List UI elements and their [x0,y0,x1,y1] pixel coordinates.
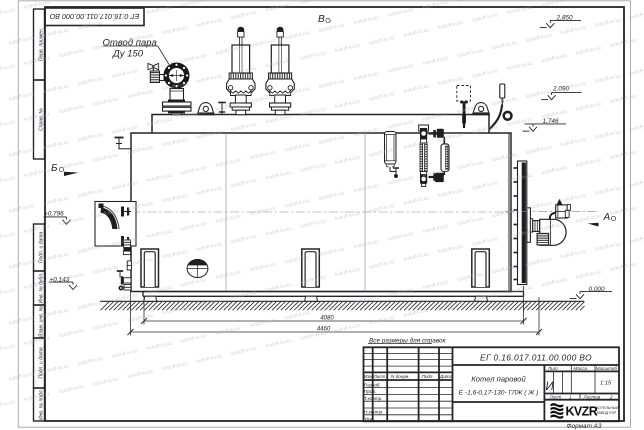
svg-text:Все размеры для справок: Все размеры для справок [369,336,447,344]
svg-text:В: В [318,14,325,25]
svg-text:Т.контр.: Т.контр. [364,396,383,401]
svg-text:Подп.: Подп. [422,374,434,379]
svg-text:Ду 150: Ду 150 [112,49,144,60]
svg-text:Лист: Лист [549,395,562,400]
svg-text:1:15: 1:15 [600,381,612,387]
svg-text:КОТЕЛЬНЫЙ: КОТЕЛЬНЫЙ [596,406,619,410]
svg-text:Масса: Масса [574,366,588,371]
svg-text:И: И [546,381,555,393]
svg-text:KVZR: KVZR [566,405,598,419]
svg-text:Утв.: Утв. [364,416,374,421]
svg-text:Изм.: Изм. [364,374,374,379]
svg-text:Дата: Дата [439,374,453,379]
svg-text:2: 2 [609,395,613,400]
svg-text:N докум.: N докум. [391,374,410,379]
svg-text:Взам. инв. №: Взам. инв. № [39,305,45,337]
svg-text:Пров.: Пров. [364,389,376,394]
svg-text:Формат А3: Формат А3 [567,423,602,430]
svg-text:ЕГ 0.16.017.011.00.000 ВО: ЕГ 0.16.017.011.00.000 ВО [480,352,592,362]
svg-text:Е -1,6-0,17-130- ГЛЖ ( Ж ): Е -1,6-0,17-130- ГЛЖ ( Ж ) [459,390,539,397]
svg-text:4080: 4080 [320,316,334,322]
svg-text:+0,796: +0,796 [44,210,64,217]
svg-text:2,850: 2,850 [556,14,573,21]
svg-text:Лист: Лист [373,374,386,379]
svg-text:Лит.: Лит. [547,366,559,371]
svg-text:1: 1 [569,395,572,400]
svg-text:Инв. № дубл.: Инв. № дубл. [39,273,45,304]
svg-text:Листов: Листов [583,395,601,400]
svg-text:ЗАВОД РЗР: ЗАВОД РЗР [596,411,617,415]
svg-text:Н.контр.: Н.контр. [364,410,383,415]
svg-text:0,000: 0,000 [589,286,605,293]
svg-text:Масштаб: Масштаб [596,366,618,371]
svg-text:Разраб.: Разраб. [364,382,381,387]
svg-text:Котел паровой: Котел паровой [471,375,526,384]
